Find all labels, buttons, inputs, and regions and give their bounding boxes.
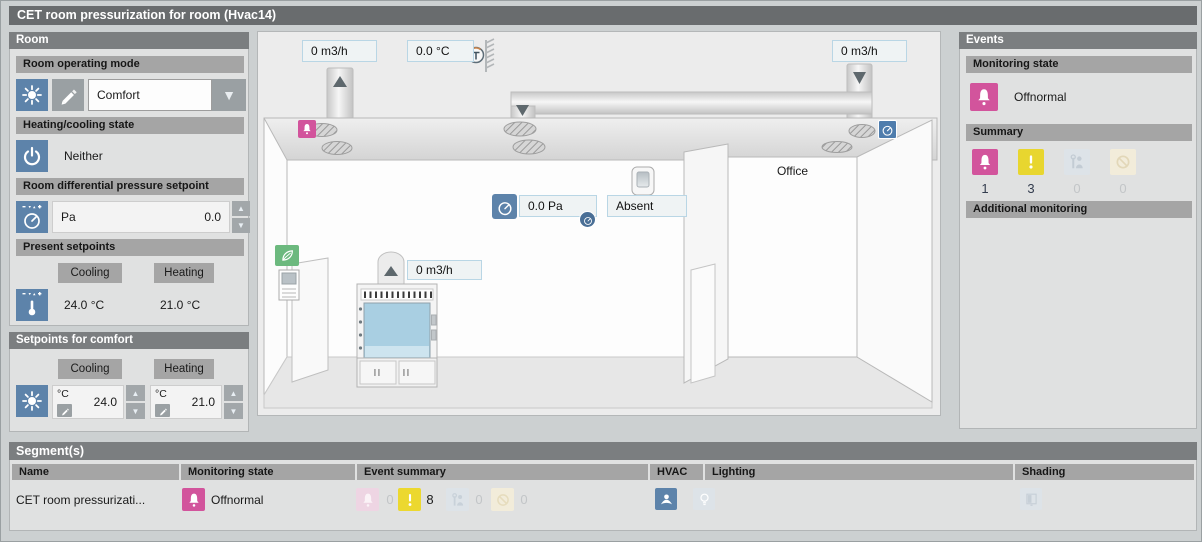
dropdown-arrow-icon[interactable]: ▼ (212, 79, 246, 111)
section-heating-cooling-state: Heating/cooling state (16, 117, 244, 134)
damper-icon[interactable] (878, 120, 897, 139)
comfort-panel: Cooling Heating °C 24.0 ▲ ▼ °C 21.0 ▲ ▼ (9, 349, 249, 432)
maintenance-icon[interactable] (1064, 149, 1090, 175)
back-wall (287, 160, 684, 357)
ceiling-slab (264, 118, 937, 160)
dividing-wall-door (691, 264, 715, 383)
office-right-wall (857, 120, 932, 402)
warning-icon[interactable] (1018, 149, 1044, 175)
column-header-name: Name (12, 464, 179, 480)
comfort-heating-unit: °C (155, 388, 167, 400)
section-monitoring-state: Monitoring state (966, 56, 1192, 73)
diff-pressure-stepper: ▲ ▼ (232, 201, 250, 233)
diff-pressure-value: 0.0 (204, 210, 221, 224)
warning-count: 8 (422, 492, 438, 507)
stepper-down-icon[interactable]: ▼ (232, 218, 250, 233)
alarm-bell-icon[interactable] (972, 149, 998, 175)
column-header-lighting: Lighting (705, 464, 1013, 480)
stepper-down-icon[interactable]: ▼ (126, 403, 145, 419)
diff-pressure-field[interactable]: Pa 0.0 (52, 201, 230, 233)
alarm-bell-icon[interactable] (298, 120, 316, 138)
warning-count: 3 (1018, 181, 1044, 196)
office-label: Office (728, 164, 857, 178)
heating-cooling-value: Neither (64, 140, 103, 172)
section-summary: Summary (966, 124, 1192, 141)
room-panel-header: Room (9, 32, 249, 49)
comfort-heating-field[interactable]: °C 21.0 (150, 385, 222, 419)
office-flow-field[interactable]: 0 m3/h (832, 40, 907, 62)
shading-icon (1020, 488, 1042, 510)
stepper-down-icon[interactable]: ▼ (224, 403, 243, 419)
gauge-icon (16, 201, 48, 233)
room-operator-unit-icon (279, 270, 299, 300)
presence-state-field[interactable]: Absent (607, 195, 687, 217)
lighting-icon (693, 488, 715, 510)
hvac-icon[interactable] (655, 488, 677, 510)
diff-pressure-unit: Pa (61, 210, 76, 224)
page-title: CET room pressurization for room (Hvac14… (9, 6, 1197, 25)
comfort-heating-label: Heating (154, 359, 214, 379)
out-of-service-count: 0 (1110, 181, 1136, 196)
present-cooling-label: Cooling (58, 263, 122, 283)
maintenance-icon (446, 488, 469, 511)
section-additional-monitoring: Additional monitoring (966, 201, 1192, 218)
presence-detector-icon (632, 167, 654, 195)
monitoring-state-value: Offnormal (1014, 83, 1066, 111)
pressure-gauge-icon[interactable] (492, 194, 517, 219)
table-row[interactable]: CET room pressurizati... Offnormal 0 8 0… (10, 485, 1198, 515)
comfort-cooling-value: 24.0 (94, 395, 117, 409)
segments-panel-header: Segment(s) (9, 442, 1197, 460)
hood-flow-field[interactable]: 0 m3/h (407, 260, 482, 280)
section-present-setpoints: Present setpoints (16, 239, 244, 256)
present-heating-label: Heating (154, 263, 214, 283)
exhaust-duct (327, 68, 353, 119)
section-diff-pressure: Room differential pressure setpoint (16, 178, 244, 195)
column-header-monitoring-state: Monitoring state (181, 464, 355, 480)
app-window: CET room pressurization for room (Hvac14… (0, 0, 1202, 542)
present-cooling-value: 24.0 °C (64, 289, 104, 321)
comfort-heating-stepper: ▲ ▼ (224, 385, 243, 419)
out-of-service-count: 0 (516, 492, 532, 507)
operating-mode-select[interactable]: Comfort (88, 79, 212, 111)
segment-monitoring-value: Offnormal (211, 493, 263, 507)
maintenance-count: 0 (471, 492, 487, 507)
alarm-bell-icon (356, 488, 379, 511)
thermometer-icon (16, 289, 48, 321)
alarm-bell-icon (182, 488, 205, 511)
column-header-hvac: HVAC (650, 464, 703, 480)
out-of-service-icon (491, 488, 514, 511)
stepper-up-icon[interactable]: ▲ (224, 385, 243, 401)
events-panel: Monitoring state Offnormal Summary 1 3 0… (959, 49, 1197, 429)
damper-icon[interactable] (579, 211, 596, 228)
comfort-cooling-stepper: ▲ ▼ (126, 385, 145, 419)
comfort-heating-value: 21.0 (192, 395, 215, 409)
pencil-icon[interactable] (155, 404, 170, 417)
office-back-wall (728, 157, 857, 357)
supply-duct (511, 64, 872, 119)
pencil-icon[interactable] (52, 79, 84, 111)
present-heating-value: 21.0 °C (160, 289, 200, 321)
maintenance-count: 0 (1064, 181, 1090, 196)
stepper-up-icon[interactable]: ▲ (126, 385, 145, 401)
room-graphic-panel: 0 m3/h 0.0 °C 0 m3/h 0 m3/h 0.0 Pa Absen… (257, 31, 941, 416)
power-icon (16, 140, 48, 172)
events-panel-header: Events (959, 32, 1197, 49)
out-of-service-icon[interactable] (1110, 149, 1136, 175)
leaf-icon[interactable] (275, 245, 299, 266)
section-room-operating-mode: Room operating mode (16, 56, 244, 73)
room-graphic-svg (258, 32, 940, 415)
alarm-bell-icon (970, 83, 998, 111)
stepper-up-icon[interactable]: ▲ (232, 201, 250, 216)
alarm-count: 0 (382, 492, 398, 507)
sun-icon (16, 79, 48, 111)
comfort-cooling-field[interactable]: °C 24.0 (52, 385, 124, 419)
warning-icon (398, 488, 421, 511)
segments-panel: Name Monitoring state Event summary HVAC… (9, 460, 1197, 531)
column-header-shading: Shading (1015, 464, 1194, 480)
comfort-panel-header: Setpoints for comfort (9, 332, 249, 349)
supply-temp-field[interactable]: 0.0 °C (407, 40, 474, 62)
comfort-cooling-label: Cooling (58, 359, 122, 379)
comfort-cooling-unit: °C (57, 388, 69, 400)
alarm-count: 1 (972, 181, 998, 196)
sun-icon (16, 385, 48, 417)
column-header-event-summary: Event summary (357, 464, 648, 480)
room-panel: Room operating mode Comfort ▼ Heating/co… (9, 49, 249, 326)
pencil-icon[interactable] (57, 404, 72, 417)
exhaust-flow-field[interactable]: 0 m3/h (302, 40, 377, 62)
segment-name[interactable]: CET room pressurizati... (16, 493, 145, 507)
